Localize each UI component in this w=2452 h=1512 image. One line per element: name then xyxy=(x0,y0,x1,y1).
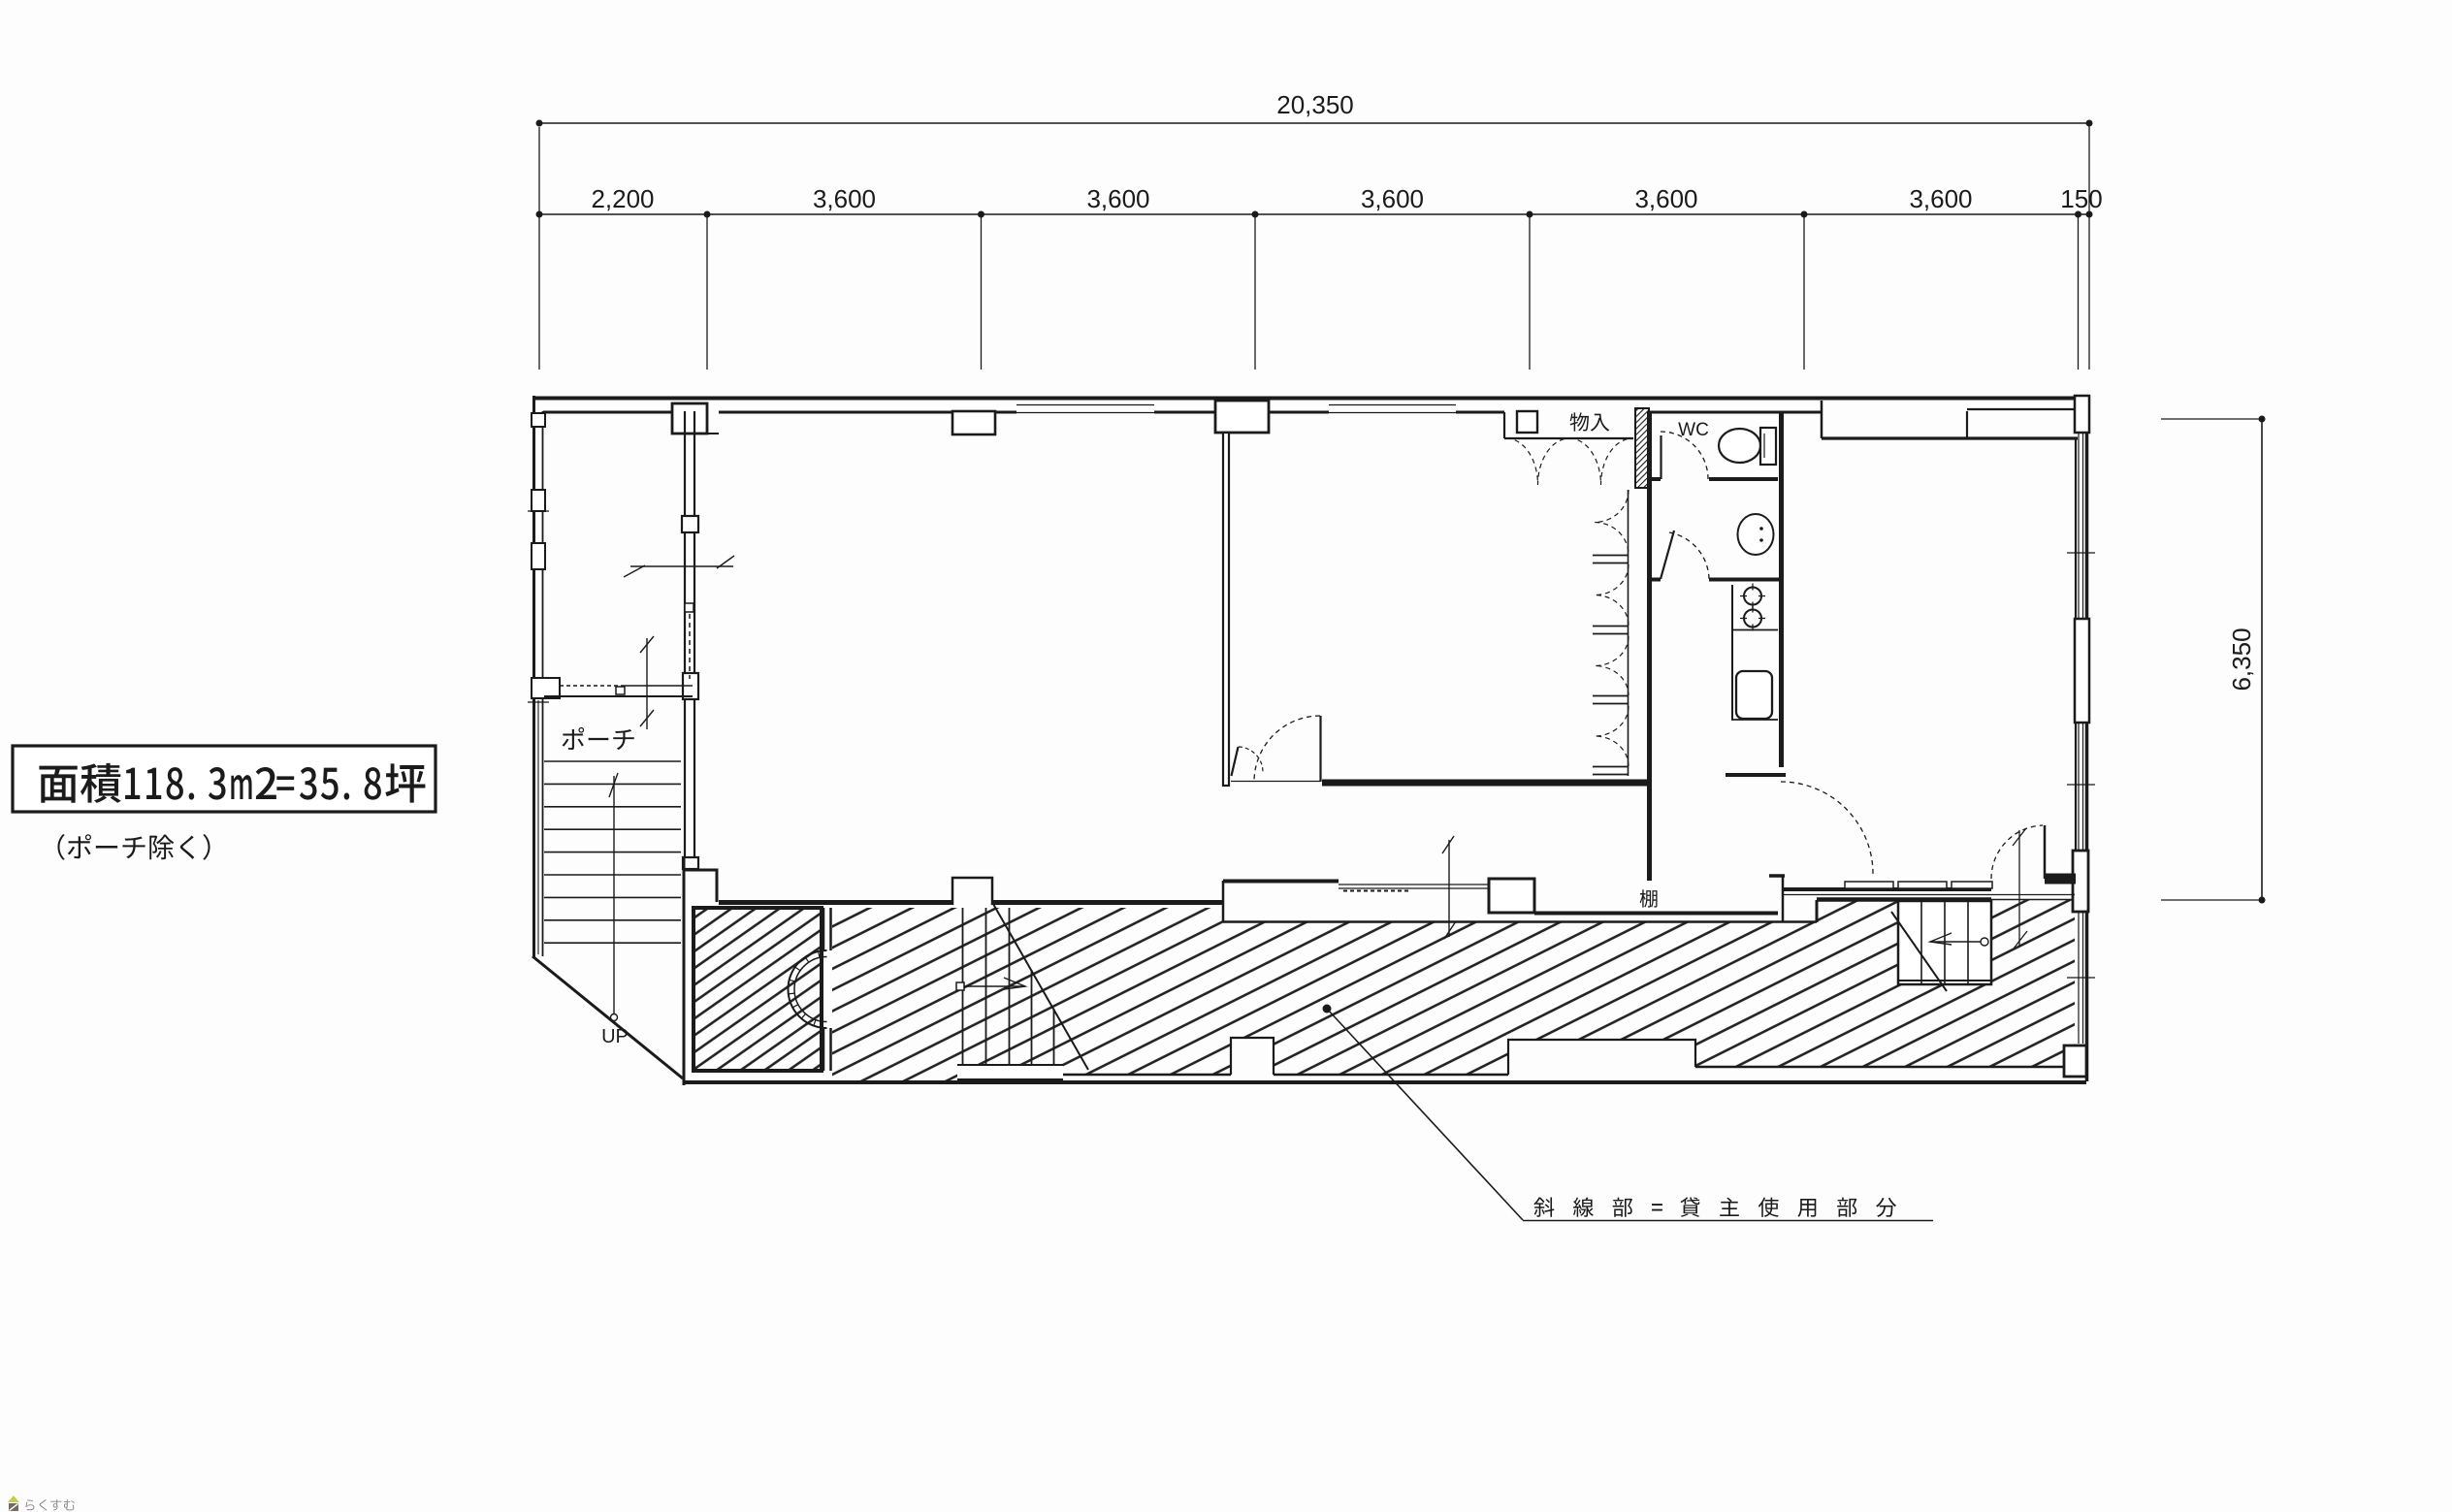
svg-text:UP: UP xyxy=(601,1026,629,1047)
svg-text:3,600: 3,600 xyxy=(1361,184,1424,213)
svg-text:150: 150 xyxy=(2060,184,2102,213)
svg-text:3,600: 3,600 xyxy=(813,184,876,213)
svg-text:WC: WC xyxy=(1678,420,1709,440)
svg-text:20,350: 20,350 xyxy=(1276,90,1354,119)
svg-text:2,200: 2,200 xyxy=(591,184,654,213)
svg-text:3,600: 3,600 xyxy=(1086,184,1149,213)
svg-text:3,600: 3,600 xyxy=(1909,184,1972,213)
svg-text:6,350: 6,350 xyxy=(2227,627,2256,691)
svg-text:3,600: 3,600 xyxy=(1634,184,1697,213)
